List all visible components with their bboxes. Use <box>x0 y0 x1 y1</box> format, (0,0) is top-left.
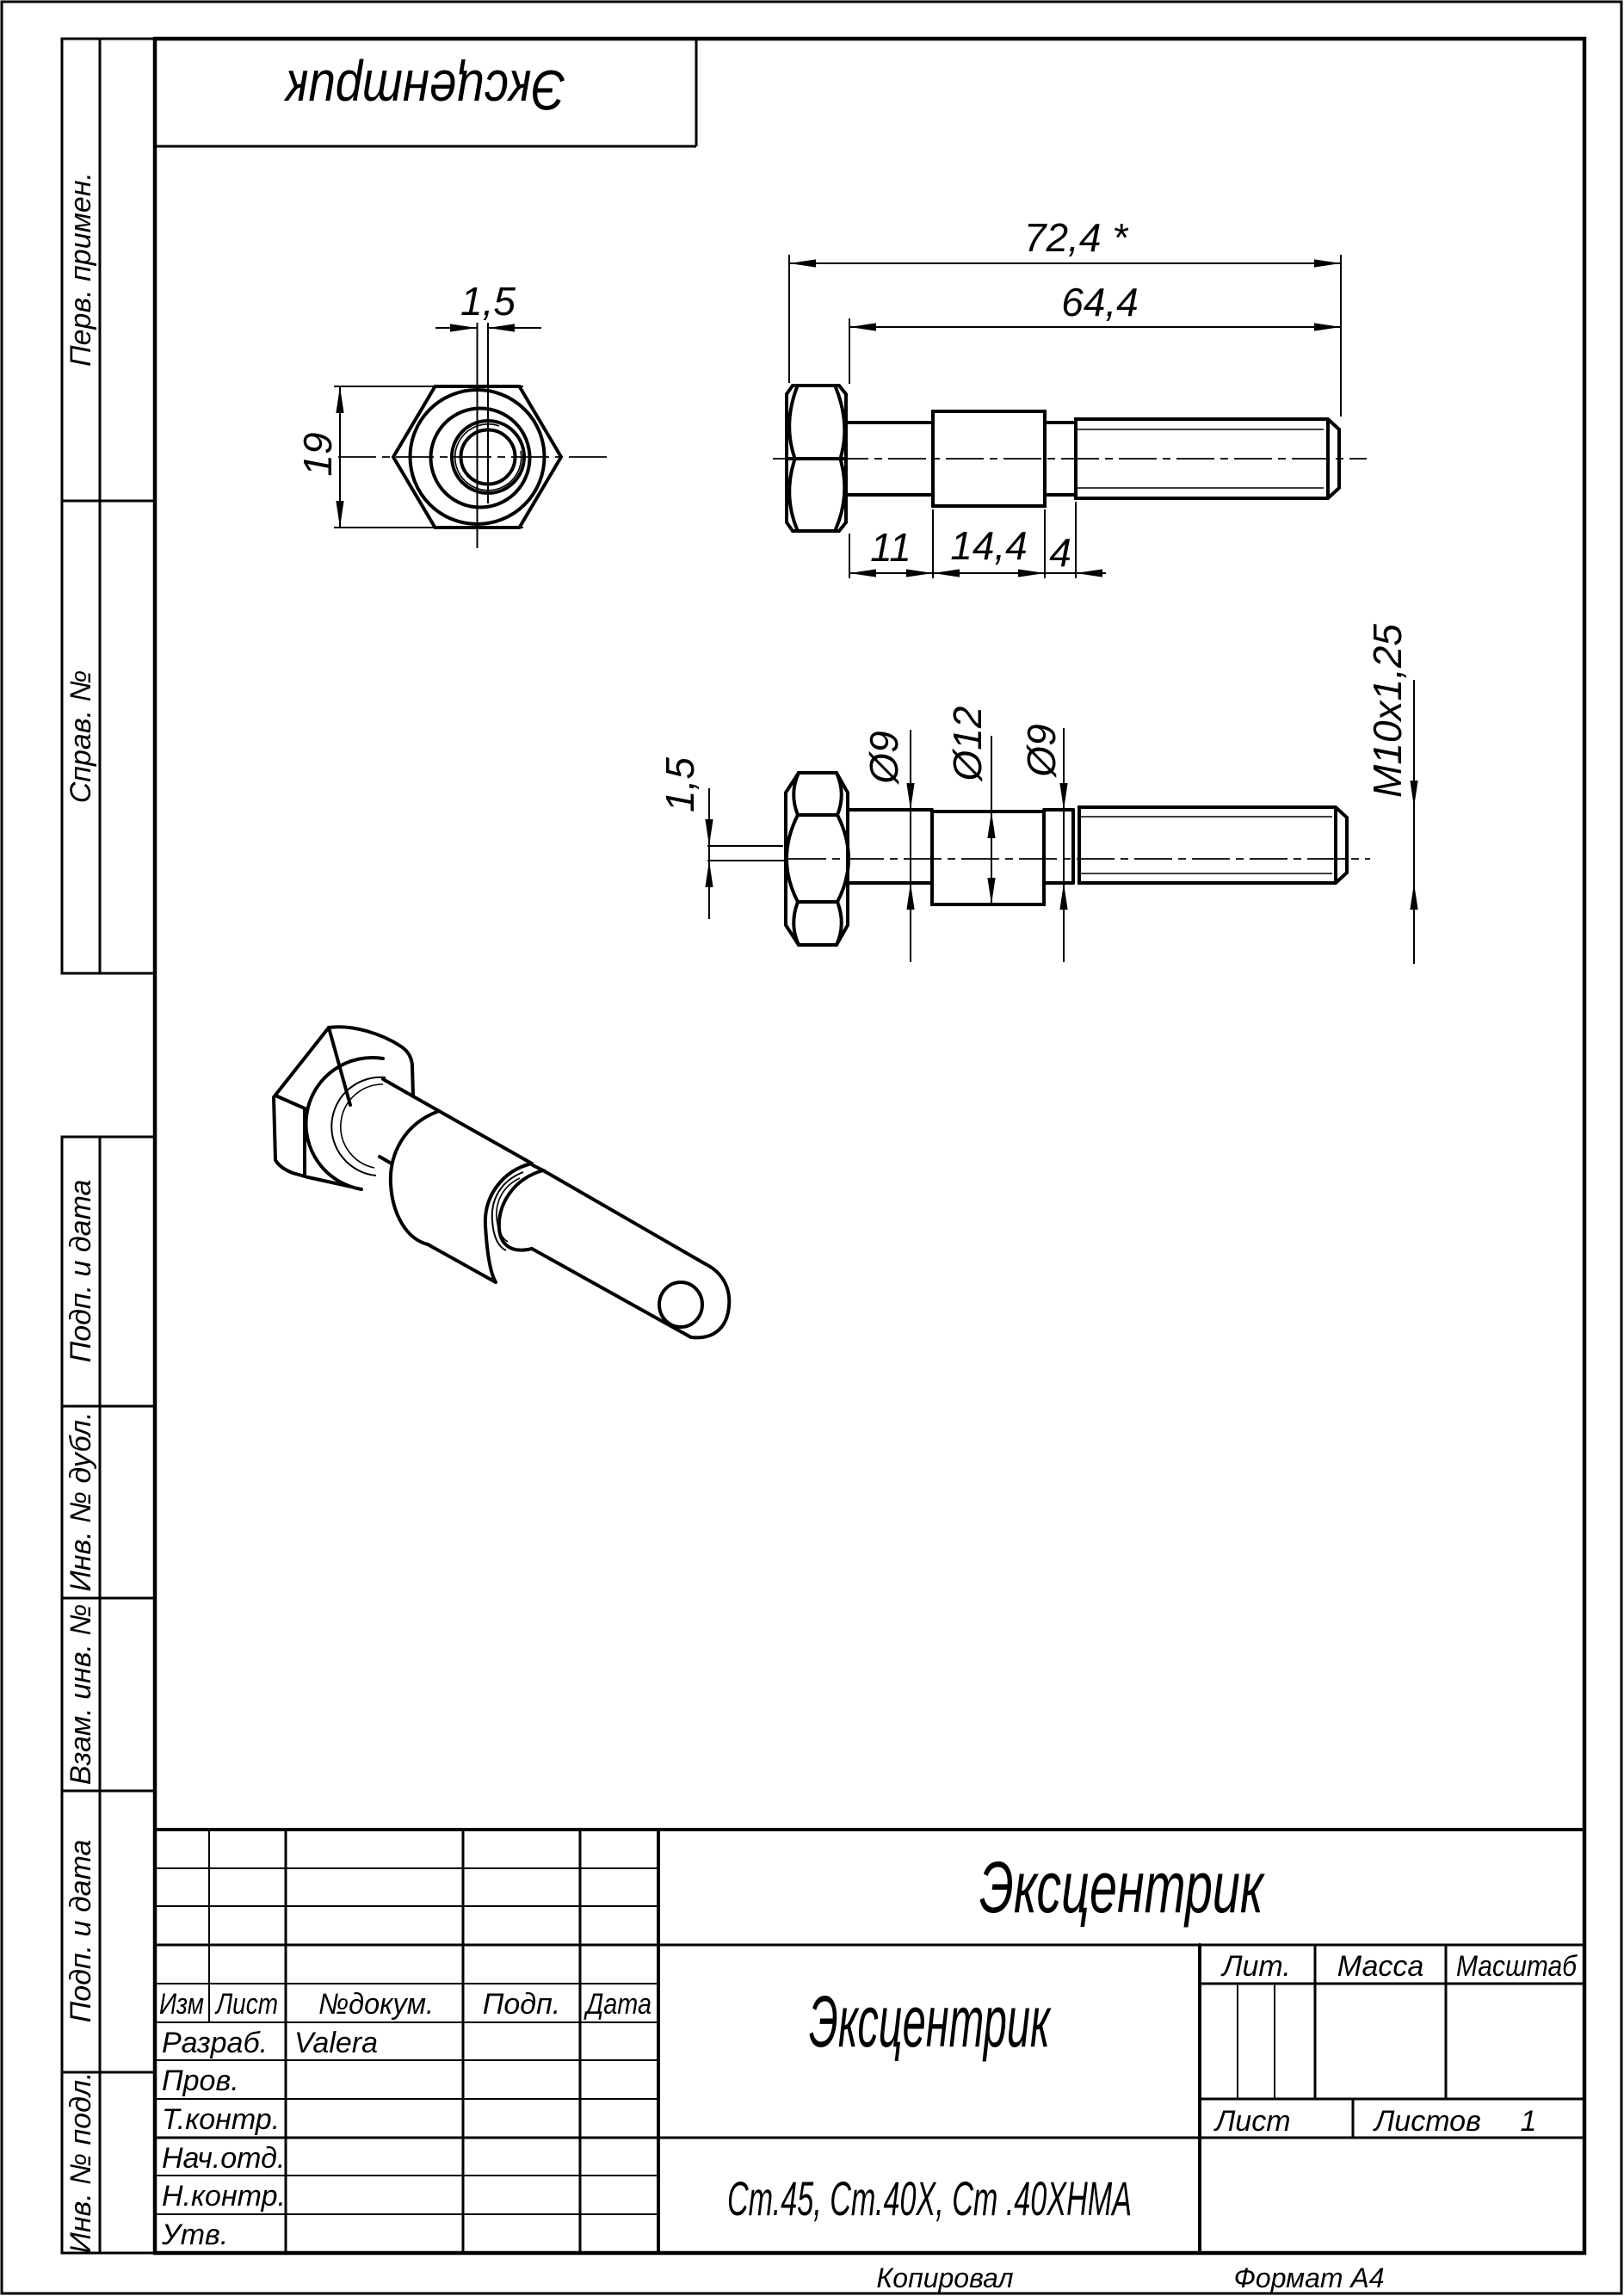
svg-text:1,5: 1,5 <box>658 757 702 812</box>
svg-text:4: 4 <box>1049 530 1071 575</box>
svg-text:Инв. № дубл.: Инв. № дубл. <box>65 1411 97 1591</box>
svg-text:Масса: Масса <box>1337 1950 1424 1983</box>
svg-text:Ст.45, Ст.40Х, Ст .40ХНМА: Ст.45, Ст.40Х, Ст .40ХНМА <box>727 2171 1132 2225</box>
svg-text:Эксцентрик: Эксцентрик <box>809 1981 1052 2062</box>
svg-text:Взам. инв. №: Взам. инв. № <box>65 1604 97 1785</box>
svg-text:Инв. № подл.: Инв. № подл. <box>65 2072 97 2254</box>
svg-text:Эксцентрик: Эксцентрик <box>283 59 565 122</box>
svg-text:72,4 *: 72,4 * <box>1024 215 1129 260</box>
svg-text:Листов: Листов <box>1373 2105 1481 2138</box>
svg-text:Пров.: Пров. <box>162 2065 239 2097</box>
svg-text:Подп. и дата: Подп. и дата <box>65 1840 97 2023</box>
svg-text:19: 19 <box>295 432 340 476</box>
svg-text:Ø9: Ø9 <box>861 731 906 785</box>
svg-text:Лист: Лист <box>1213 2105 1291 2138</box>
svg-text:Нач.отд.: Нач.отд. <box>162 2142 285 2175</box>
svg-text:Изм: Изм <box>159 1988 204 2021</box>
svg-text:Формат А4: Формат А4 <box>1233 2262 1384 2293</box>
svg-text:Масштаб: Масштаб <box>1456 1950 1578 1983</box>
svg-text:№докум.: №докум. <box>318 1988 434 2021</box>
svg-text:Разраб.: Разраб. <box>162 2027 268 2059</box>
svg-text:1,5: 1,5 <box>460 279 516 324</box>
svg-text:64,4: 64,4 <box>1061 280 1139 324</box>
svg-text:Лит.: Лит. <box>1220 1950 1291 1983</box>
svg-text:Утв.: Утв. <box>161 2219 228 2251</box>
svg-text:11: 11 <box>870 525 911 570</box>
svg-text:M10x1,25: M10x1,25 <box>1365 624 1410 798</box>
svg-text:Копировал: Копировал <box>876 2262 1013 2293</box>
svg-text:Ø12: Ø12 <box>945 707 990 783</box>
svg-text:Эксцентрик: Эксцентрик <box>979 1847 1265 1928</box>
svg-text:14,4: 14,4 <box>950 523 1028 568</box>
svg-text:Н.контр.: Н.контр. <box>162 2180 286 2213</box>
svg-text:Перв. примен.: Перв. примен. <box>65 172 97 367</box>
svg-text:Ø9: Ø9 <box>1019 724 1064 778</box>
svg-text:Подп. и дата: Подп. и дата <box>65 1180 97 1363</box>
svg-text:Valera: Valera <box>294 2027 378 2059</box>
svg-text:Справ. №: Справ. № <box>65 670 97 804</box>
svg-text:Подп.: Подп. <box>483 1988 561 2021</box>
svg-text:Лист: Лист <box>214 1988 278 2021</box>
svg-text:Т.контр.: Т.контр. <box>162 2103 280 2136</box>
svg-text:Дата: Дата <box>584 1988 651 2021</box>
svg-text:1: 1 <box>1521 2105 1537 2138</box>
